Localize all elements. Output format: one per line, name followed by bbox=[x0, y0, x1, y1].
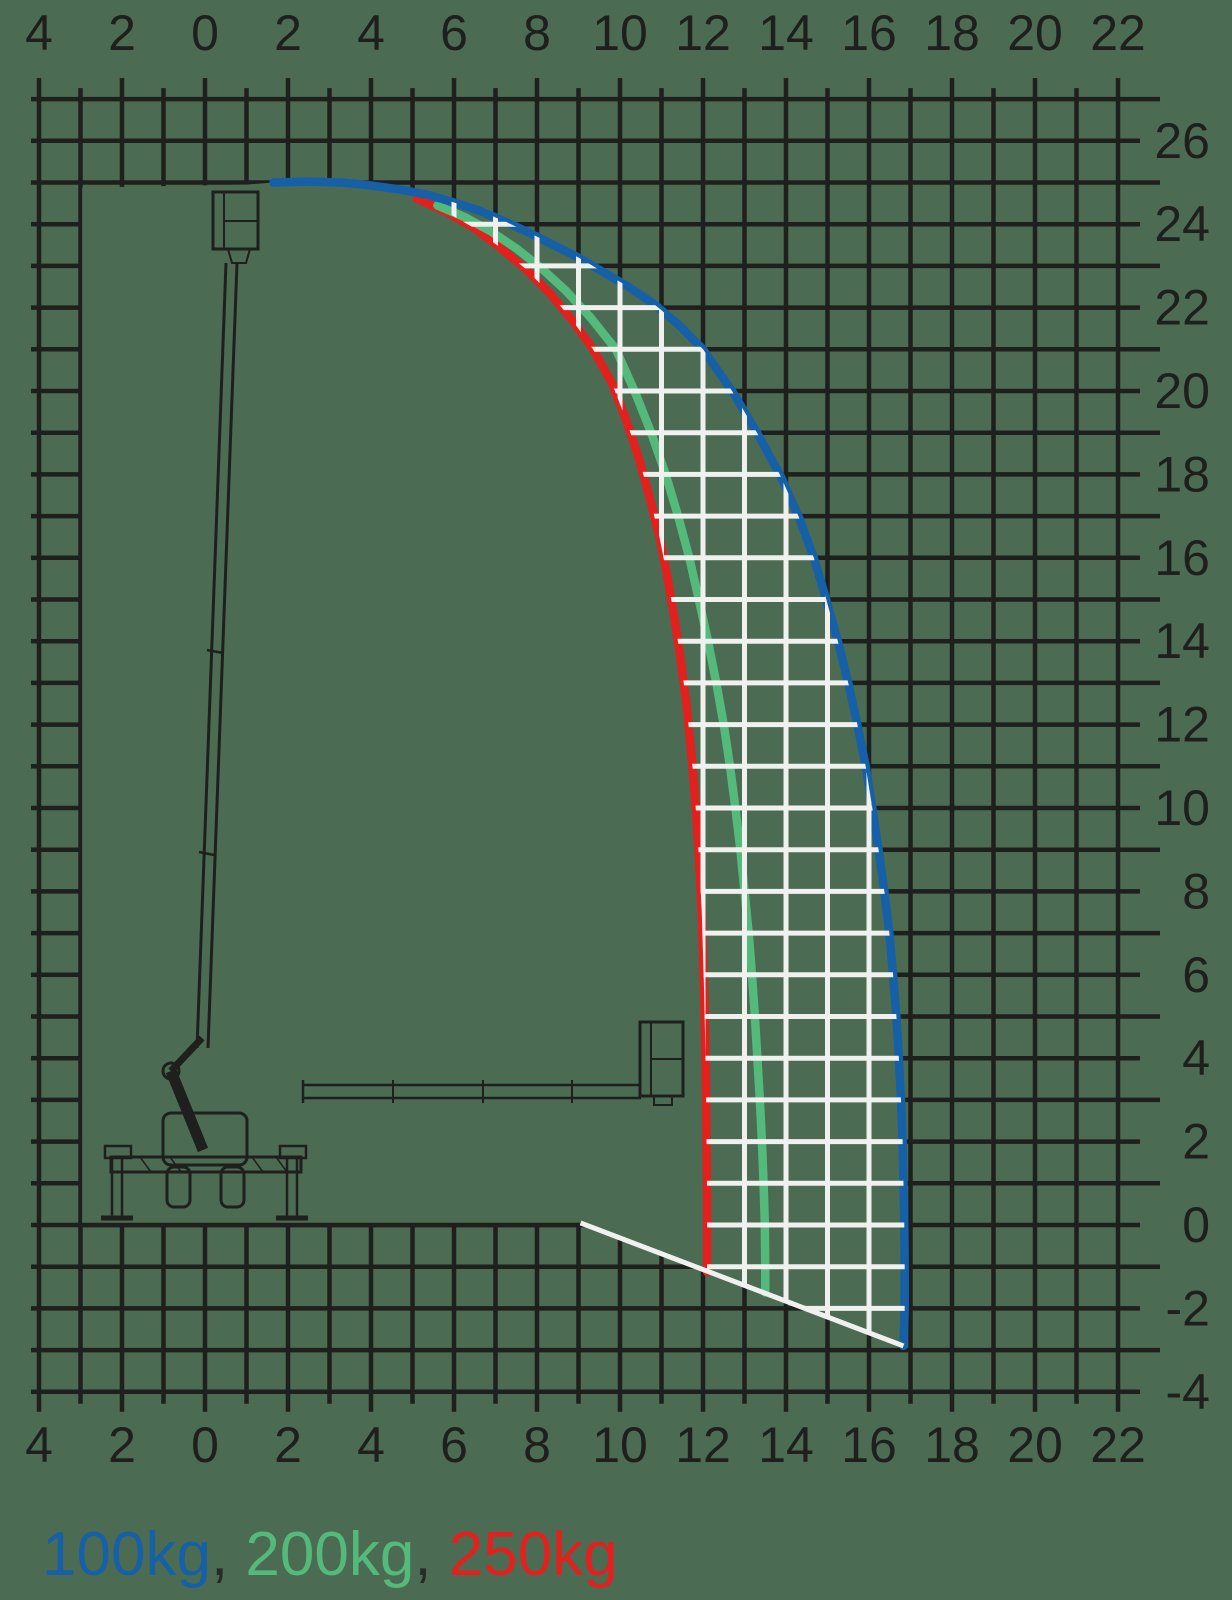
y-axis-label: 6 bbox=[1182, 947, 1210, 1003]
y-axis-label: 24 bbox=[1154, 196, 1210, 252]
y-axis-label: 2 bbox=[1182, 1114, 1210, 1170]
y-axis-label: 4 bbox=[1182, 1030, 1210, 1086]
load-chart-page: 4422002244668810101212141416161818202022… bbox=[0, 0, 1232, 1600]
chart-canvas: 4422002244668810101212141416161818202022… bbox=[0, 0, 1232, 1600]
y-axis-labels: 26242220181614121086420-2-4 bbox=[1154, 113, 1210, 1420]
x-axis-label-top: 0 bbox=[191, 5, 219, 61]
y-axis-label: 16 bbox=[1154, 530, 1210, 586]
y-axis-label: 12 bbox=[1154, 697, 1210, 753]
x-axis-label-top: 6 bbox=[440, 5, 468, 61]
x-axis-label-top: 2 bbox=[108, 5, 136, 61]
x-axis-label-bottom: 20 bbox=[1007, 1417, 1063, 1473]
y-axis-label: 0 bbox=[1182, 1197, 1210, 1253]
x-axis-label-bottom: 2 bbox=[108, 1417, 136, 1473]
x-axis-label-top: 22 bbox=[1090, 5, 1146, 61]
y-axis-label: 8 bbox=[1182, 863, 1210, 919]
y-axis-label: 20 bbox=[1154, 363, 1210, 419]
legend-separator-2: , bbox=[414, 1520, 448, 1589]
legend-label-100kg: 100kg bbox=[42, 1520, 211, 1589]
x-axis-label-bottom: 0 bbox=[191, 1417, 219, 1473]
y-axis-label: 14 bbox=[1154, 613, 1210, 669]
y-axis-label: 26 bbox=[1154, 113, 1210, 169]
x-axis-label-top: 8 bbox=[523, 5, 551, 61]
x-axis-label-top: 10 bbox=[592, 5, 648, 61]
x-axis-label-bottom: 18 bbox=[924, 1417, 980, 1473]
legend-label-200kg: 200kg bbox=[245, 1520, 414, 1589]
x-axis-label-top: 20 bbox=[1007, 5, 1063, 61]
legend: 100kg, 200kg, 250kg bbox=[42, 1519, 618, 1590]
x-axis-label-bottom: 2 bbox=[274, 1417, 302, 1473]
legend-label-250kg: 250kg bbox=[449, 1520, 618, 1589]
x-axis-label-bottom: 10 bbox=[592, 1417, 648, 1473]
y-axis-label: -2 bbox=[1166, 1280, 1210, 1336]
x-axis-label-bottom: 4 bbox=[357, 1417, 385, 1473]
x-axis-label-top: 4 bbox=[357, 5, 385, 61]
x-axis-label-bottom: 8 bbox=[523, 1417, 551, 1473]
y-axis-label: -4 bbox=[1166, 1364, 1210, 1420]
x-axis-label-bottom: 12 bbox=[675, 1417, 731, 1473]
x-axis-label-top: 4 bbox=[25, 5, 53, 61]
x-axis-label-bottom: 16 bbox=[841, 1417, 897, 1473]
y-axis-label: 22 bbox=[1154, 280, 1210, 336]
x-axis-label-top: 14 bbox=[758, 5, 814, 61]
x-axis-label-bottom: 4 bbox=[25, 1417, 53, 1473]
x-axis-label-top: 16 bbox=[841, 5, 897, 61]
x-axis-label-top: 18 bbox=[924, 5, 980, 61]
x-axis-label-top: 2 bbox=[274, 5, 302, 61]
x-axis-label-top: 12 bbox=[675, 5, 731, 61]
x-axis-label-bottom: 6 bbox=[440, 1417, 468, 1473]
y-axis-label: 18 bbox=[1154, 446, 1210, 502]
x-axis-label-bottom: 22 bbox=[1090, 1417, 1146, 1473]
y-axis-label: 10 bbox=[1154, 780, 1210, 836]
x-axis-label-bottom: 14 bbox=[758, 1417, 814, 1473]
legend-separator-1: , bbox=[211, 1520, 245, 1589]
